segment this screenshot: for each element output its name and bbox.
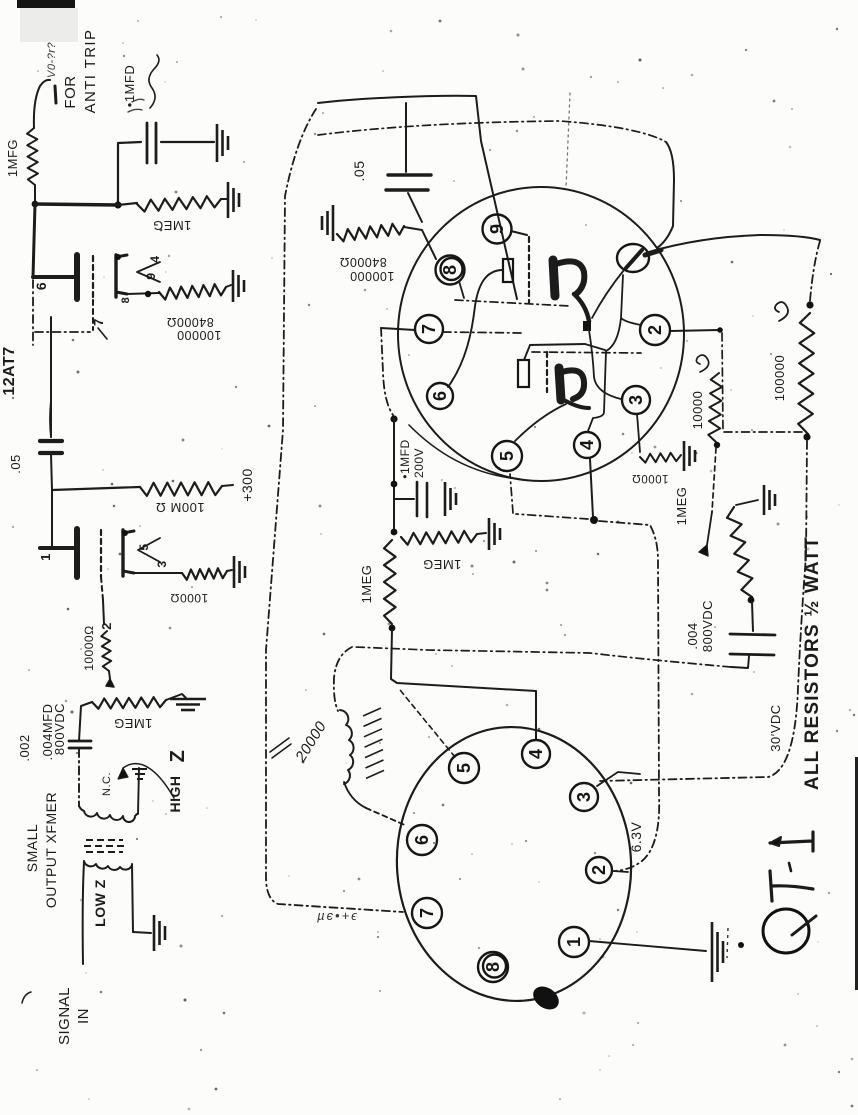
svg-text:2: 2 bbox=[589, 865, 609, 875]
svg-text:800VDC: 800VDC bbox=[700, 600, 715, 652]
svg-text:7: 7 bbox=[91, 318, 106, 326]
svg-text:1MEG: 1MEG bbox=[153, 218, 192, 233]
svg-text:3: 3 bbox=[155, 560, 169, 567]
svg-text:100000: 100000 bbox=[350, 269, 395, 283]
svg-text:1MEG: 1MEG bbox=[674, 487, 689, 526]
svg-text:800VDC: 800VDC bbox=[52, 703, 67, 755]
svg-text:4: 4 bbox=[148, 255, 162, 262]
svg-text:8: 8 bbox=[120, 297, 132, 304]
svg-text:84000Ω: 84000Ω bbox=[339, 255, 386, 269]
svg-text:8: 8 bbox=[440, 265, 460, 275]
svg-text:30′VDC: 30′VDC bbox=[768, 704, 783, 751]
svg-text:IN: IN bbox=[75, 1008, 92, 1024]
svg-text:4: 4 bbox=[526, 749, 546, 759]
svg-text:FOR: FOR bbox=[62, 75, 79, 108]
svg-text:9: 9 bbox=[487, 224, 507, 234]
svg-text:10000: 10000 bbox=[690, 391, 705, 430]
svg-text:1MFG: 1MFG bbox=[5, 139, 20, 177]
svg-text:100000: 100000 bbox=[177, 328, 222, 342]
svg-text:7: 7 bbox=[417, 908, 437, 918]
svg-text:2: 2 bbox=[645, 325, 665, 335]
svg-text:V0-?r?: V0-?r? bbox=[46, 42, 58, 78]
svg-text:10000Ω: 10000Ω bbox=[82, 625, 96, 671]
svg-text:1MEG: 1MEG bbox=[423, 557, 462, 572]
svg-text:5: 5 bbox=[454, 763, 474, 773]
svg-text:1MEG: 1MEG bbox=[114, 716, 153, 731]
svg-text:OUTPUT XFMER: OUTPUT XFMER bbox=[43, 792, 59, 908]
svg-text:100000: 100000 bbox=[772, 355, 787, 401]
svg-text:7: 7 bbox=[419, 324, 439, 334]
svg-text:µє•+ϵ: µє•+ϵ bbox=[317, 908, 359, 923]
svg-text:1000Ω: 1000Ω bbox=[170, 591, 208, 605]
svg-text:1000Ω: 1000Ω bbox=[632, 472, 669, 484]
svg-text:.05: .05 bbox=[351, 161, 367, 182]
svg-text:84000Ω: 84000Ω bbox=[166, 315, 213, 329]
svg-text:5: 5 bbox=[497, 451, 517, 461]
svg-text:6: 6 bbox=[33, 282, 49, 290]
svg-text:SIGNAL: SIGNAL bbox=[56, 987, 73, 1045]
svg-text:12AT7: 12AT7 bbox=[1, 346, 18, 395]
svg-text:.004: .004 bbox=[685, 622, 700, 649]
svg-text:•1MFD: •1MFD bbox=[398, 439, 412, 478]
svg-text:6: 6 bbox=[430, 391, 450, 401]
svg-text:Z: Z bbox=[167, 750, 189, 763]
svg-text:SMALL: SMALL bbox=[24, 824, 40, 872]
svg-text:ANTI TRIP: ANTI TRIP bbox=[82, 29, 99, 114]
svg-text:1MEG: 1MEG bbox=[359, 565, 374, 604]
svg-text:HIGH: HIGH bbox=[167, 776, 183, 813]
svg-text:200V: 200V bbox=[412, 448, 426, 478]
svg-text:3: 3 bbox=[574, 792, 594, 802]
svg-text:1: 1 bbox=[38, 553, 53, 561]
svg-text:9: 9 bbox=[144, 272, 158, 279]
svg-text:LOW Z: LOW Z bbox=[92, 879, 108, 927]
svg-text:.002: .002 bbox=[17, 734, 32, 761]
svg-text:6: 6 bbox=[412, 835, 432, 845]
svg-text:.05: .05 bbox=[8, 454, 23, 474]
svg-text:100M Ω: 100M Ω bbox=[155, 500, 204, 515]
svg-text:2: 2 bbox=[99, 622, 114, 630]
svg-text:3: 3 bbox=[626, 395, 646, 405]
svg-text:4: 4 bbox=[577, 440, 597, 450]
svg-text:5: 5 bbox=[137, 543, 151, 550]
svg-text:1: 1 bbox=[564, 937, 584, 947]
svg-text:N.C.: N.C. bbox=[101, 772, 113, 796]
svg-text:+300: +300 bbox=[239, 468, 255, 502]
svg-text:8: 8 bbox=[483, 962, 503, 972]
svg-text:ALL RESISTORS ½ WATT: ALL RESISTORS ½ WATT bbox=[802, 536, 823, 790]
